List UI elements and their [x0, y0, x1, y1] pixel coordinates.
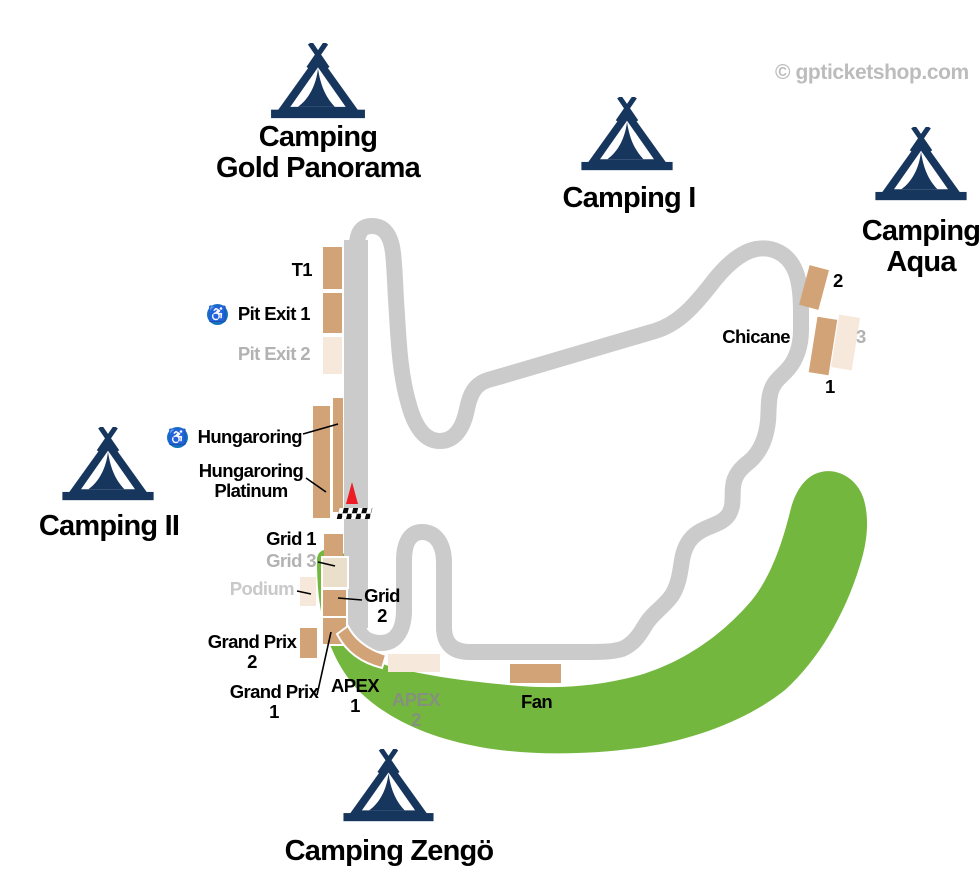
stand-grid-1[interactable]: [324, 534, 343, 557]
podium-label: Podium: [230, 579, 294, 599]
tent-icon-camping-ii[interactable]: [62, 427, 154, 502]
hungaroring-label: Hungaroring: [198, 427, 302, 447]
grid-2-label: Grid 2: [364, 586, 400, 626]
stand-podium[interactable]: [300, 577, 316, 606]
apex-1-label: APEX 1: [331, 676, 379, 716]
stand-grid-2[interactable]: [321, 588, 348, 619]
stand-pit-exit-1[interactable]: [323, 293, 342, 333]
tent-icon-camping-i[interactable]: [581, 97, 673, 172]
race-track: [357, 226, 801, 652]
watermark: © gpticketshop.com: [775, 63, 969, 83]
chicane-stand-2-label: 2: [833, 271, 843, 291]
stand-grid-3[interactable]: [321, 556, 349, 589]
wheelchair-icon: ♿: [207, 304, 228, 325]
stand-fan[interactable]: [510, 664, 561, 683]
camping-i-label[interactable]: Camping I: [563, 183, 696, 214]
wheelchair-icon: ♿: [167, 427, 188, 448]
race-direction-triangle-icon: [346, 482, 358, 504]
chicane-stand-3-label: 3: [856, 327, 866, 347]
stand-hungaroring-platinum[interactable]: [313, 406, 330, 518]
stand-grand-prix-2[interactable]: [300, 628, 317, 658]
tent-icon-camping-aqua[interactable]: [875, 127, 967, 202]
camping-gold-panorama-label[interactable]: Camping Gold Panorama: [216, 122, 420, 184]
tent-icon-camping-zengo[interactable]: [343, 749, 434, 823]
grid-1-label: Grid 1: [266, 529, 316, 549]
stand-t1[interactable]: [323, 247, 342, 289]
pit-exit-2-label: Pit Exit 2: [238, 344, 310, 364]
stand-apex-2[interactable]: [388, 654, 440, 672]
camping-ii-label[interactable]: Camping II: [39, 511, 179, 542]
chicane-stand-1-label: 1: [825, 377, 835, 397]
camping-aqua-label[interactable]: Camping Aqua: [862, 216, 980, 278]
apex-2-label: APEX 2: [392, 690, 440, 730]
stand-chicane-2[interactable]: [799, 265, 829, 310]
checkered-finish-line-icon: [337, 508, 373, 519]
fan-label: Fan: [521, 692, 552, 712]
camping-zengo-label[interactable]: Camping Zengö: [285, 836, 494, 867]
pit-exit-1-label: Pit Exit 1: [238, 304, 310, 324]
stand-hungaroring[interactable]: [333, 398, 343, 512]
stand-pit-exit-2[interactable]: [323, 337, 342, 374]
hungaroring-platinum-label: Hungaroring Platinum: [199, 461, 303, 501]
stand-grand-prix-1[interactable]: [321, 616, 348, 646]
grand-prix-1-label: Grand Prix 1: [230, 682, 319, 722]
chicane-label: Chicane: [722, 327, 790, 347]
t1-label: T1: [292, 260, 312, 280]
grid-3-label: Grid 3: [266, 551, 316, 571]
tent-icon-gold-panorama[interactable]: [271, 43, 365, 120]
grand-prix-2-label: Grand Prix 2: [208, 632, 297, 672]
circuit-map: ♿ ♿ © gpticketshop.com Camping Gold Pano…: [0, 0, 980, 874]
